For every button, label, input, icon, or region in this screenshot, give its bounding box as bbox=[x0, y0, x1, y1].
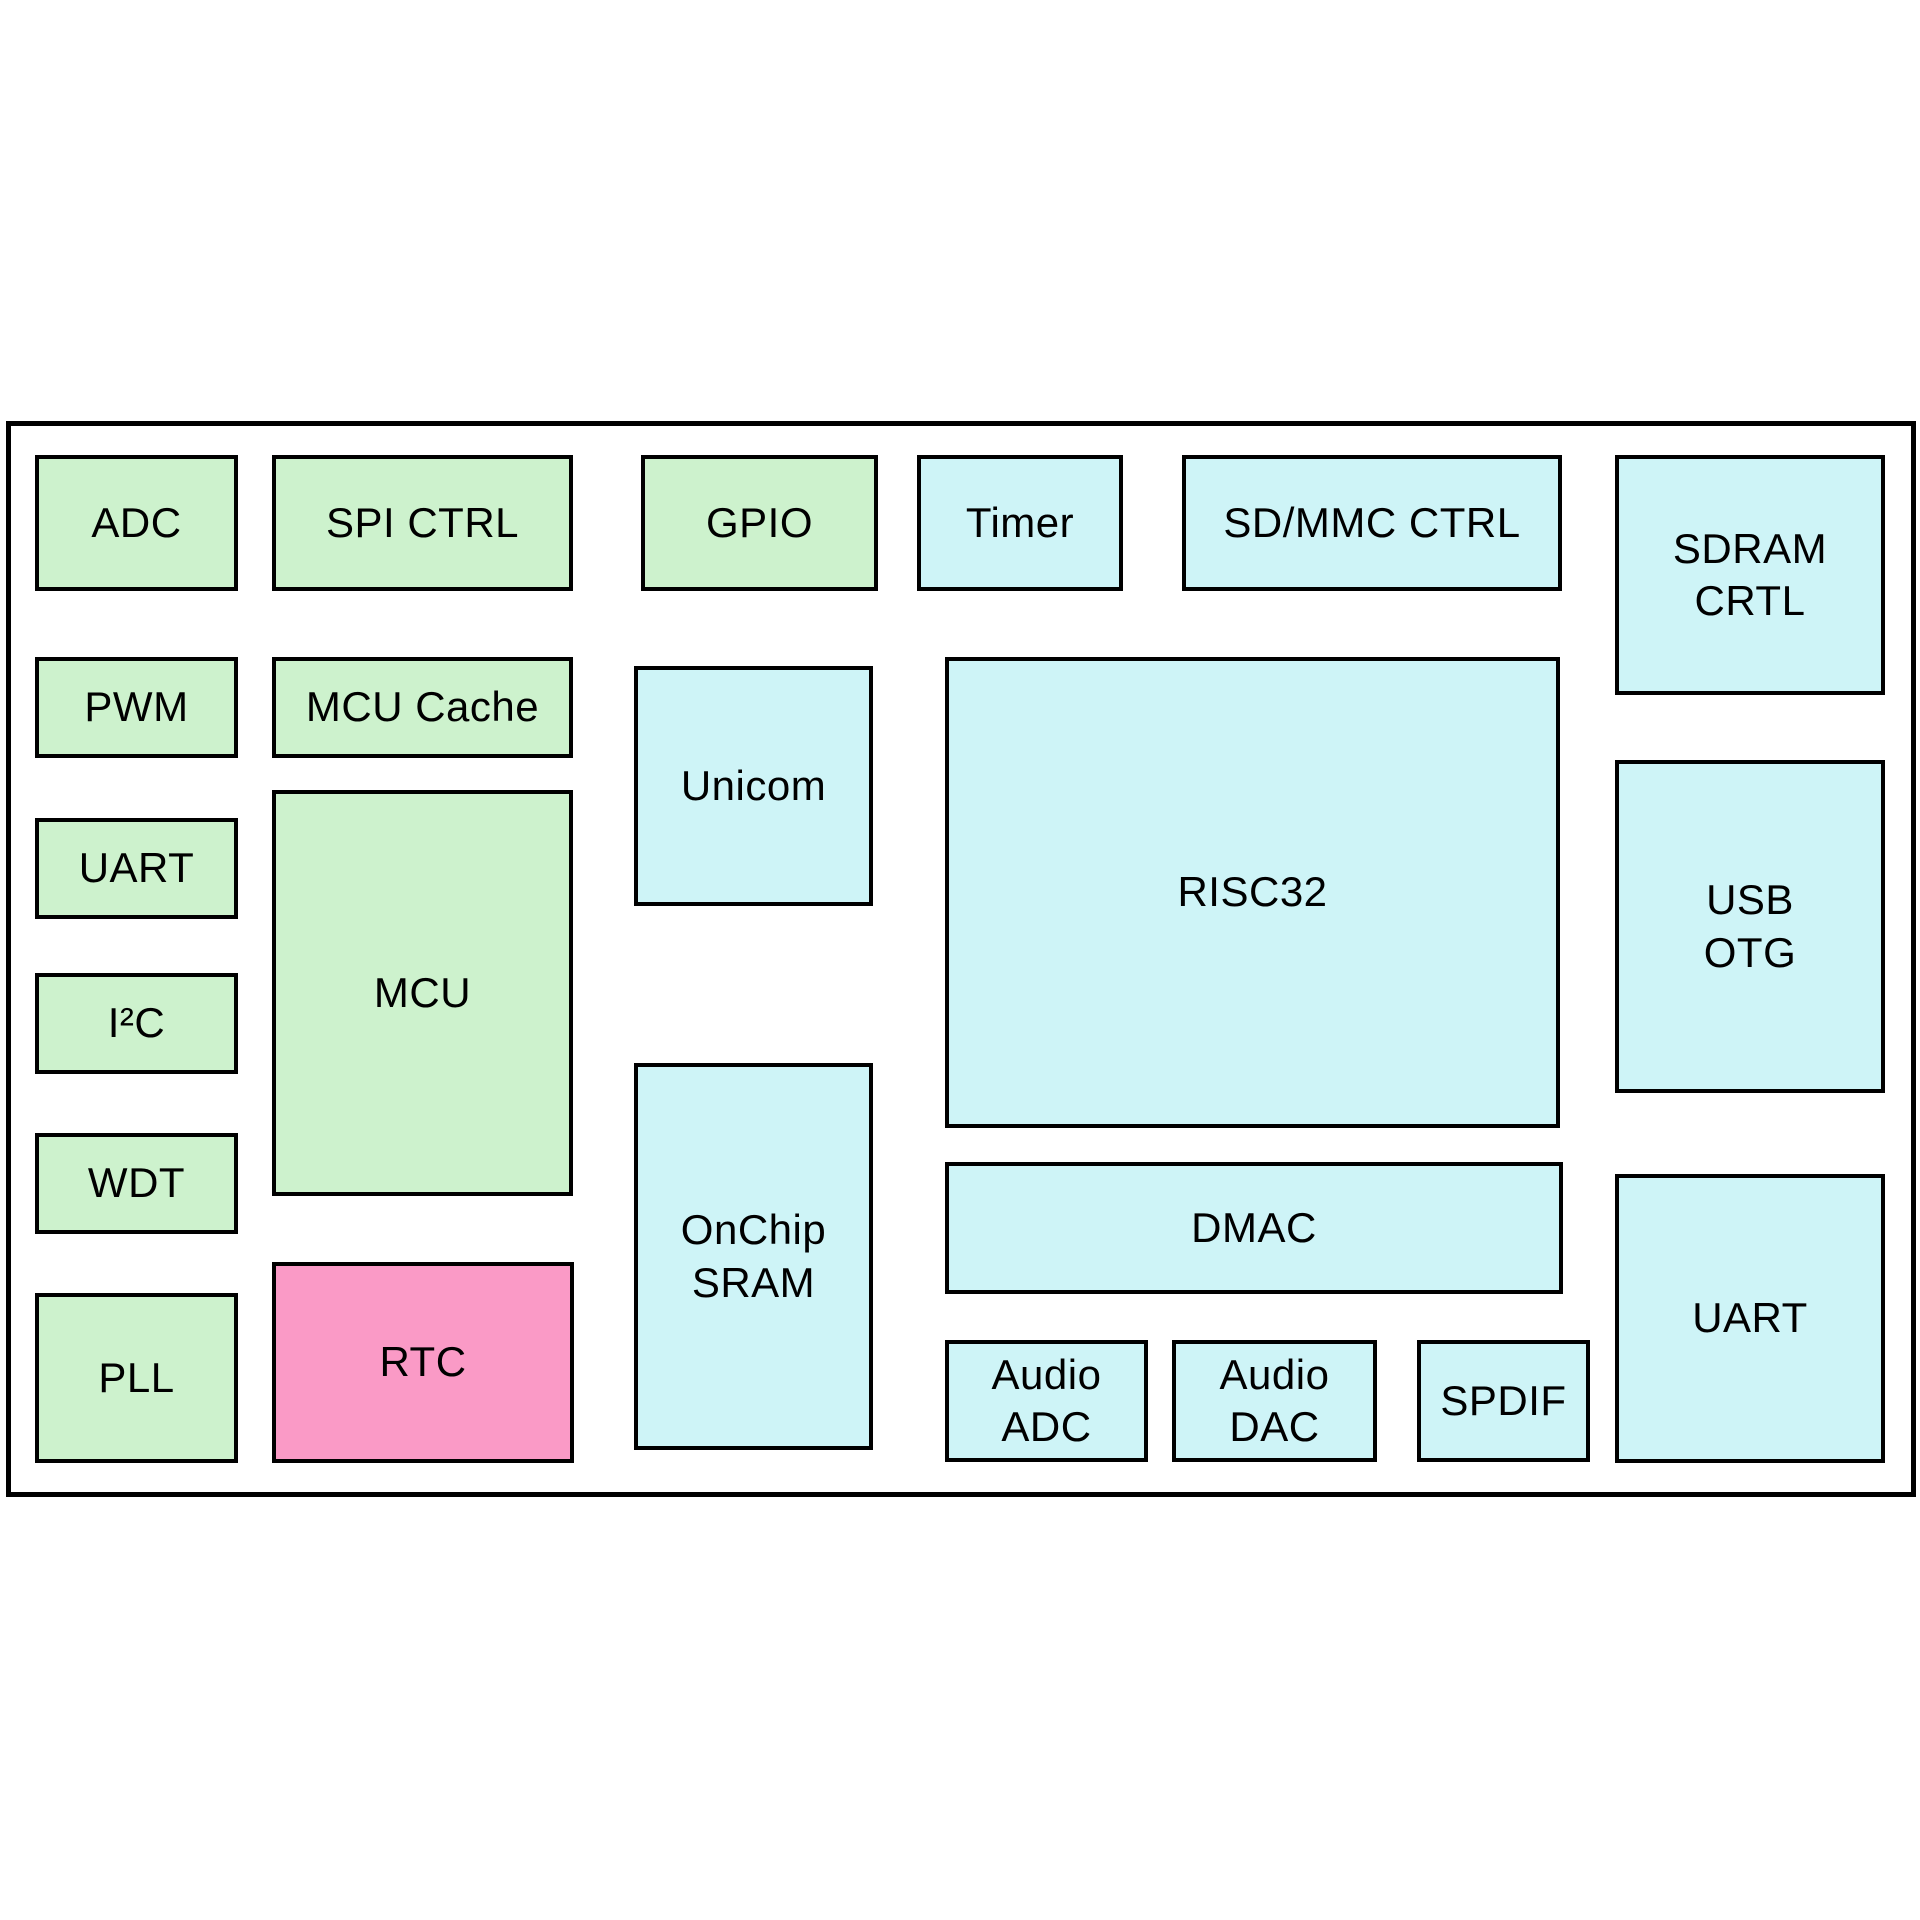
block-dmac-label: DMAC bbox=[1191, 1202, 1317, 1255]
block-sdram-crtl: SDRAM CRTL bbox=[1615, 455, 1885, 695]
block-uart-left-label: UART bbox=[79, 842, 195, 895]
block-i2c: I²C bbox=[35, 973, 238, 1074]
soc-block-diagram: ADC SPI CTRL GPIO Timer SD/MMC CTRL SDRA… bbox=[0, 0, 1920, 1920]
block-gpio-label: GPIO bbox=[706, 497, 813, 550]
block-uart-left: UART bbox=[35, 818, 238, 919]
block-timer-label: Timer bbox=[966, 497, 1074, 550]
block-mcu-cache-label: MCU Cache bbox=[306, 681, 539, 734]
block-sdmmc-ctrl: SD/MMC CTRL bbox=[1182, 455, 1562, 591]
block-adc: ADC bbox=[35, 455, 238, 591]
block-sdmmc-ctrl-label: SD/MMC CTRL bbox=[1223, 497, 1520, 550]
block-spdif-label: SPDIF bbox=[1440, 1375, 1566, 1428]
block-audio-adc-label: Audio ADC bbox=[992, 1349, 1102, 1454]
block-pwm: PWM bbox=[35, 657, 238, 758]
block-audio-dac: Audio DAC bbox=[1172, 1340, 1377, 1462]
block-spi-ctrl: SPI CTRL bbox=[272, 455, 573, 591]
block-audio-adc: Audio ADC bbox=[945, 1340, 1148, 1462]
block-wdt: WDT bbox=[35, 1133, 238, 1234]
block-rtc-label: RTC bbox=[379, 1336, 466, 1389]
block-mcu-label: MCU bbox=[374, 967, 471, 1020]
block-pll-label: PLL bbox=[98, 1352, 174, 1405]
block-onchip-sram-label: OnChip SRAM bbox=[681, 1204, 826, 1309]
block-spdif: SPDIF bbox=[1417, 1340, 1590, 1462]
block-mcu-cache: MCU Cache bbox=[272, 657, 573, 758]
block-sdram-crtl-label: SDRAM CRTL bbox=[1673, 523, 1827, 628]
block-uart-right-label: UART bbox=[1692, 1292, 1808, 1345]
block-usb-otg-label: USB OTG bbox=[1704, 874, 1797, 979]
block-wdt-label: WDT bbox=[88, 1157, 185, 1210]
block-unicom: Unicom bbox=[634, 666, 873, 906]
block-usb-otg: USB OTG bbox=[1615, 760, 1885, 1093]
block-unicom-label: Unicom bbox=[681, 760, 826, 813]
block-uart-right: UART bbox=[1615, 1174, 1885, 1463]
block-timer: Timer bbox=[917, 455, 1123, 591]
block-audio-dac-label: Audio DAC bbox=[1220, 1349, 1330, 1454]
block-mcu: MCU bbox=[272, 790, 573, 1196]
block-adc-label: ADC bbox=[91, 497, 181, 550]
block-rtc: RTC bbox=[272, 1262, 574, 1463]
block-pwm-label: PWM bbox=[84, 681, 188, 734]
block-i2c-label: I²C bbox=[108, 997, 166, 1050]
block-spi-ctrl-label: SPI CTRL bbox=[326, 497, 519, 550]
block-dmac: DMAC bbox=[945, 1162, 1563, 1294]
block-gpio: GPIO bbox=[641, 455, 878, 591]
block-pll: PLL bbox=[35, 1293, 238, 1463]
block-risc32: RISC32 bbox=[945, 657, 1560, 1128]
block-risc32-label: RISC32 bbox=[1177, 866, 1327, 919]
block-onchip-sram: OnChip SRAM bbox=[634, 1063, 873, 1450]
